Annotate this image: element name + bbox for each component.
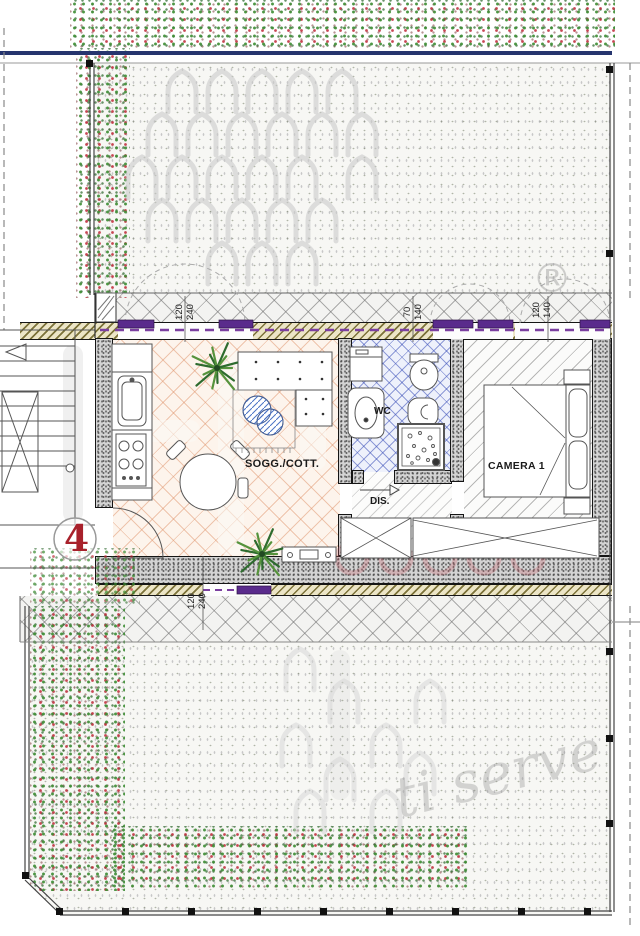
nightstand-top bbox=[564, 370, 590, 384]
nightstand-bottom bbox=[564, 498, 590, 514]
dim-width: 120 bbox=[531, 302, 542, 318]
dim-height: 140 bbox=[542, 302, 553, 318]
hall-door-symbol bbox=[390, 485, 399, 495]
dim-width: 70 bbox=[402, 307, 413, 318]
dim-height: 240 bbox=[197, 593, 208, 609]
entry-door-swing bbox=[113, 508, 163, 558]
toilet bbox=[408, 398, 438, 426]
floor-plan-page: SOGG./COTT. WC DIS. CAMERA 1 120 240 70 … bbox=[0, 0, 640, 936]
dining-table bbox=[165, 439, 250, 510]
kitchen-units bbox=[112, 344, 152, 500]
dim-height: 240 bbox=[185, 304, 196, 320]
tv-bench bbox=[282, 547, 336, 562]
unit-number: 4 bbox=[64, 518, 89, 560]
dimension-window-bottom: 120 240 bbox=[184, 579, 210, 623]
bathroom-label: WC bbox=[374, 406, 391, 417]
dim-width: 120 bbox=[186, 593, 197, 609]
sofa bbox=[233, 352, 332, 453]
dim-width: 120 bbox=[174, 304, 185, 320]
dim-height: 140 bbox=[413, 304, 424, 320]
bathroom-fixtures bbox=[348, 347, 444, 470]
bedroom-label: CAMERA 1 bbox=[488, 460, 545, 472]
living-room-label: SOGG./COTT. bbox=[245, 458, 319, 470]
registered-trademark-watermark: ® bbox=[532, 256, 572, 302]
dimension-window-top-left: 120 240 bbox=[172, 290, 198, 334]
hallway-label: DIS. bbox=[370, 496, 389, 507]
dimension-window-top-mid: 70 140 bbox=[400, 290, 426, 334]
